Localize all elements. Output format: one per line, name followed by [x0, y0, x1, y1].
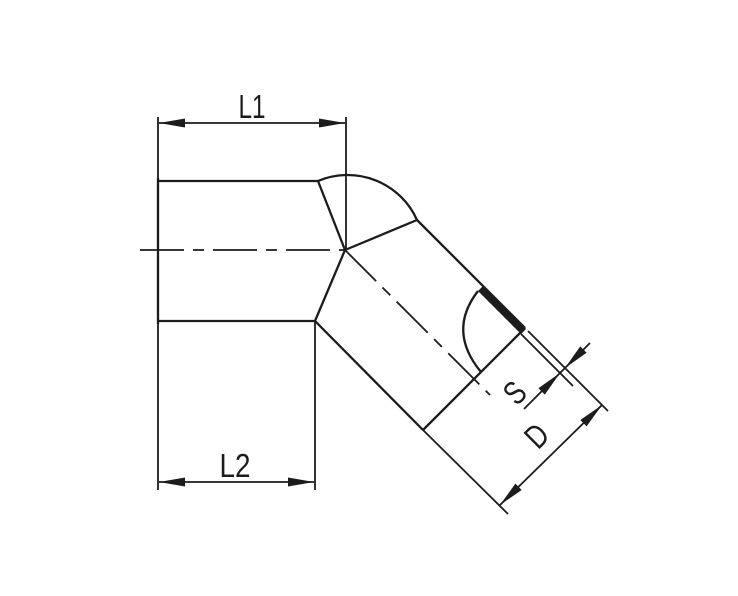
- dim-label-l2: L2: [220, 447, 251, 484]
- dim-label-l1: L1: [239, 88, 266, 125]
- l2-arrow-left: [159, 478, 185, 487]
- l2-arrow-right: [288, 478, 314, 487]
- bend-inner-corner-line: [315, 250, 345, 321]
- dimension-l2: L2: [159, 447, 314, 487]
- extension-line-inner-surface: [521, 334, 573, 386]
- bend-miter-line-left: [318, 181, 345, 250]
- s-arrow-upper: [565, 346, 587, 368]
- dimension-l1: L1: [159, 88, 345, 128]
- dimension-s: S: [496, 343, 590, 412]
- d-arrow-lower: [500, 484, 522, 505]
- s-arrow-lower: [538, 373, 560, 395]
- technical-drawing-canvas: L1 L2 S D: [0, 0, 738, 596]
- l1-arrow-right: [319, 119, 345, 128]
- dim-label-d: D: [517, 416, 557, 456]
- extension-line-d-lower: [423, 430, 508, 514]
- socket-wall-section-band: [478, 286, 526, 334]
- extension-line-outer-surface: [528, 331, 608, 411]
- dimension-d: D: [500, 405, 602, 505]
- elbow-fitting-drawing: L1 L2 S D: [0, 0, 738, 596]
- branch-inner-edge: [315, 321, 423, 430]
- socket-bore-arc: [463, 291, 481, 372]
- bend-outer-arc: [318, 175, 417, 220]
- l1-arrow-left: [159, 119, 185, 128]
- bend-miter-line-right: [345, 220, 417, 250]
- d-arrow-upper: [580, 405, 602, 426]
